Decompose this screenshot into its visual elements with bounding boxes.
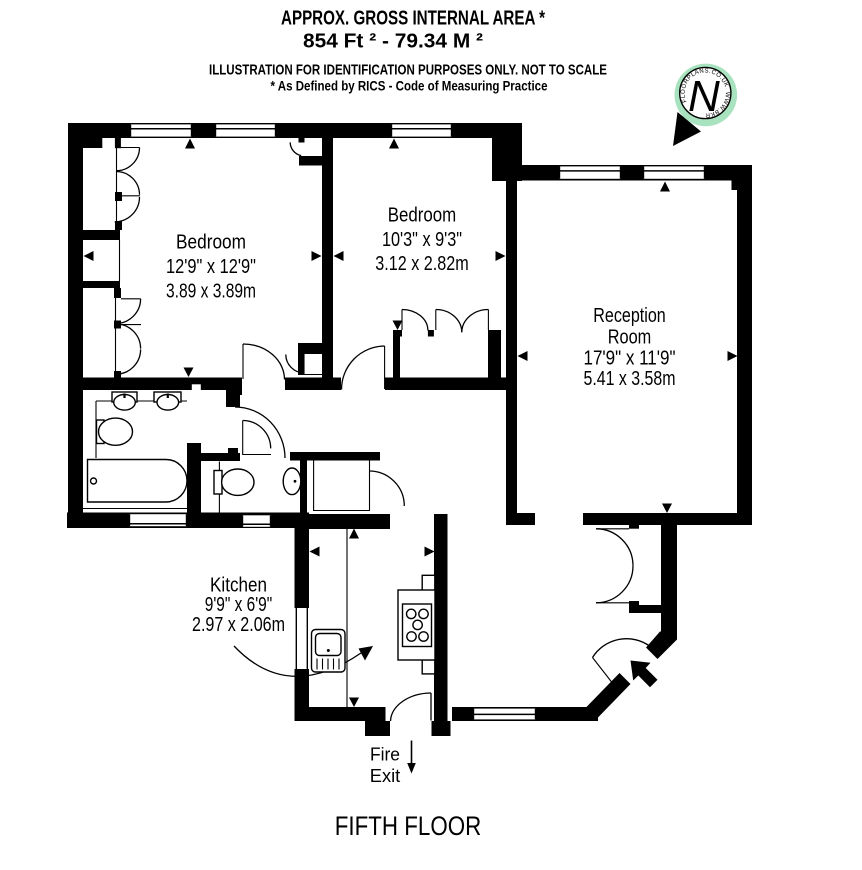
- svg-text:APPROX. GROSS INTERNAL AREA *: APPROX. GROSS INTERNAL AREA *: [281, 7, 545, 30]
- svg-text:Exit: Exit: [370, 766, 401, 786]
- svg-text:Bedroom: Bedroom: [388, 204, 457, 227]
- svg-text:N: N: [688, 72, 720, 121]
- svg-text:3.12 x 2.82m: 3.12 x 2.82m: [375, 252, 469, 275]
- svg-text:12'9" x 12'9": 12'9" x 12'9": [166, 255, 256, 278]
- svg-text:9'9" x 6'9": 9'9" x 6'9": [205, 594, 273, 616]
- svg-text:Bedroom: Bedroom: [176, 230, 246, 253]
- svg-text:Fire: Fire: [370, 745, 400, 765]
- svg-text:Kitchen: Kitchen: [210, 574, 267, 596]
- svg-text:5.41 x 3.58m: 5.41 x 3.58m: [584, 367, 676, 390]
- svg-text:ILLUSTRATION FOR IDENTIFICATIO: ILLUSTRATION FOR IDENTIFICATION PURPOSES…: [209, 62, 607, 78]
- svg-text:Reception: Reception: [593, 304, 666, 327]
- svg-text:Room: Room: [608, 326, 652, 349]
- svg-text:10'3" x 9'3": 10'3" x 9'3": [382, 228, 462, 251]
- svg-text:FIFTH FLOOR: FIFTH FLOOR: [335, 811, 482, 841]
- svg-text:3.89 x 3.89m: 3.89 x 3.89m: [166, 280, 256, 303]
- svg-text:* As Defined by RICS - Code of: * As Defined by RICS - Code of Measuring…: [271, 78, 548, 94]
- svg-text:2.97 x 2.06m: 2.97 x 2.06m: [192, 614, 285, 636]
- svg-text:854 Ft ² - 79.34 M ²: 854 Ft ² - 79.34 M ²: [303, 30, 483, 53]
